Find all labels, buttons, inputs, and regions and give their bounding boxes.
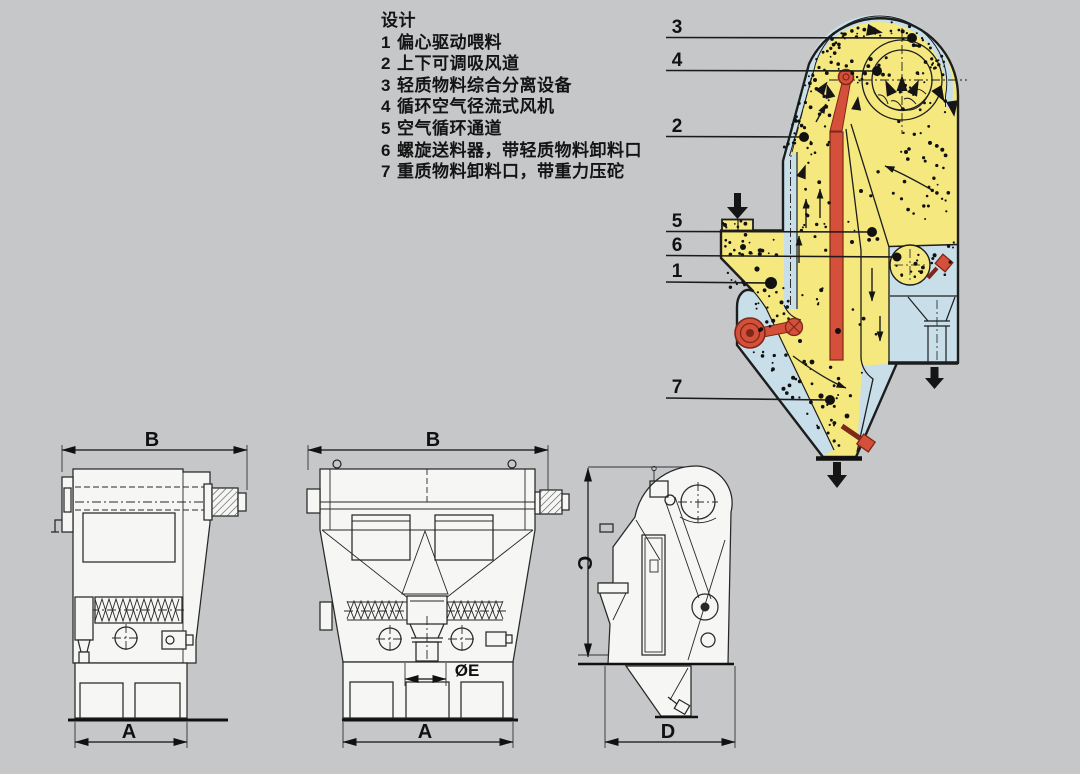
callout-7: 7 — [672, 377, 683, 398]
view-front-elevation: B — [307, 429, 569, 748]
callout-4: 4 — [672, 50, 683, 71]
separator-cross-section: 3 4 2 5 6 1 7 — [666, 16, 967, 488]
dim-label-base-front: A — [418, 721, 432, 743]
technical-diagram-page: 设计 1 偏心驱动喂料 2 上下可调吸风道 3 轻质物料综合分离设备 4 循环空… — [0, 0, 1080, 774]
diagram-canvas: 3 4 2 5 6 1 7 B — [0, 0, 1080, 774]
dim-label-outlet-diameter: ØE — [455, 661, 480, 680]
dim-label-base-left: A — [122, 721, 136, 743]
heavy-outlet-arrow-icon — [931, 367, 939, 378]
view-side-profile: C — [573, 466, 735, 748]
dim-label-width-left: B — [145, 429, 159, 451]
callout-3: 3 — [672, 17, 683, 38]
feed-arrow-icon — [734, 193, 741, 207]
callout-1: 1 — [672, 261, 683, 282]
dim-label-depth: D — [661, 721, 675, 743]
light-material-outlet — [816, 459, 862, 489]
callout-6: 6 — [672, 235, 683, 256]
view-left-elevation: B — [51, 429, 247, 748]
callout-numbers: 3 4 2 5 6 1 7 — [672, 17, 683, 398]
dim-label-width-front: B — [426, 429, 440, 451]
callout-5: 5 — [672, 211, 683, 232]
dim-label-height: C — [573, 556, 595, 570]
callout-2: 2 — [672, 116, 683, 137]
